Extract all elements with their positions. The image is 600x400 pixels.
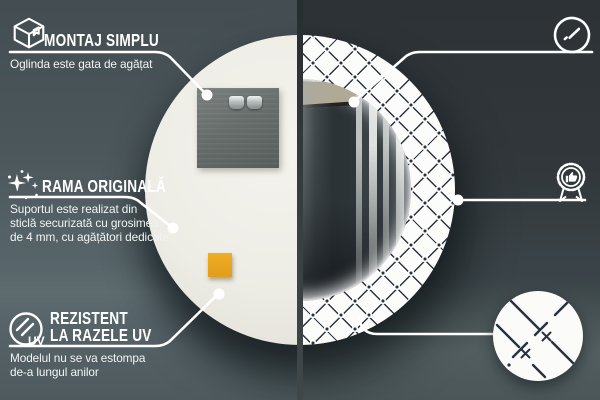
uv-resistant-icon: UV	[7, 310, 47, 350]
callout-title: MONTAJ SIMPLU	[44, 32, 159, 49]
mounting-plate	[197, 88, 279, 168]
award-badge-icon	[551, 160, 591, 205]
mirror-shine-icon	[551, 14, 594, 57]
pattern-detail-zoom	[493, 291, 583, 381]
hanger-bracket	[229, 96, 244, 109]
split-divider-line	[297, 0, 303, 400]
package-box-icon	[9, 15, 49, 53]
sparkles-icon	[5, 168, 43, 206]
callout-title: RAMA ORIGINALĂ	[42, 178, 166, 195]
callout-description: Modelul nu se va estompa de-a lungul ani…	[10, 351, 145, 379]
hanger-bracket	[247, 96, 262, 109]
pattern-detail-bubble	[493, 291, 583, 381]
curtain-reflection	[356, 79, 411, 301]
curtain-reflection	[300, 83, 334, 301]
callout-description: Suportul este realizat din sticlă securi…	[10, 202, 169, 245]
svg-text:UV: UV	[28, 334, 45, 348]
product-infographic: MONTAJ SIMPLU Oglinda este gata de agăța…	[0, 0, 600, 400]
callout-description: Oglinda este gata de agățat	[10, 57, 152, 71]
callout-title-line2: LA RAZELE UV	[50, 327, 152, 344]
orange-sticker	[208, 253, 232, 277]
